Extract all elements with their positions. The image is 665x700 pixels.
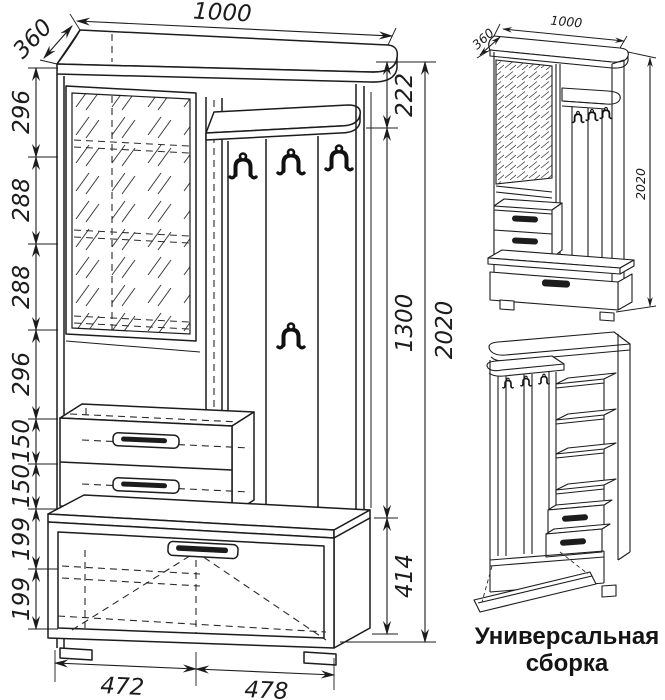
dim-left-7: 199 bbox=[9, 517, 35, 561]
mirror-panel bbox=[66, 86, 200, 352]
dim-right-top: 222 bbox=[392, 73, 418, 117]
mirror-glass-hatch bbox=[72, 93, 190, 334]
caption-line-1: Универсальная bbox=[475, 623, 660, 650]
dim-left-6: 150 bbox=[9, 464, 35, 508]
drawer-handle[interactable] bbox=[113, 433, 180, 449]
dim-left-1: 296 bbox=[9, 90, 35, 134]
assembly-drawers bbox=[546, 500, 612, 557]
blueprint-canvas: 1000 360 296 288 288 296 150 150 199 199… bbox=[0, 0, 665, 700]
dim-left-2: 288 bbox=[9, 178, 35, 222]
dim-left-8: 199 bbox=[9, 577, 35, 621]
flap-handle[interactable] bbox=[168, 541, 239, 559]
caption-line-2: сборка bbox=[526, 650, 609, 677]
dim-top-width: 1000 bbox=[192, 0, 252, 28]
dim-assembly-height: 2020 bbox=[633, 168, 648, 200]
dim-right-middle: 1300 bbox=[392, 294, 418, 353]
dim-bottom-left: 472 bbox=[100, 673, 145, 700]
dim-left-3: 288 bbox=[9, 265, 35, 309]
dim-right-bottom: 414 bbox=[392, 554, 418, 598]
bottom-cabinet bbox=[48, 518, 370, 648]
mirror-glass-hatch-small bbox=[496, 60, 552, 184]
technical-drawing: 1000 360 296 288 288 296 150 150 199 199… bbox=[0, 0, 665, 700]
flap-handle-small bbox=[542, 279, 570, 287]
dim-right-overall: 2020 bbox=[432, 301, 458, 360]
dim-assembly-width: 1000 bbox=[550, 13, 583, 31]
dim-left-4: 296 bbox=[9, 352, 35, 396]
drawer-handle[interactable] bbox=[113, 478, 180, 494]
dim-left-5: 150 bbox=[9, 419, 35, 463]
dim-bottom-right: 478 bbox=[244, 677, 289, 700]
